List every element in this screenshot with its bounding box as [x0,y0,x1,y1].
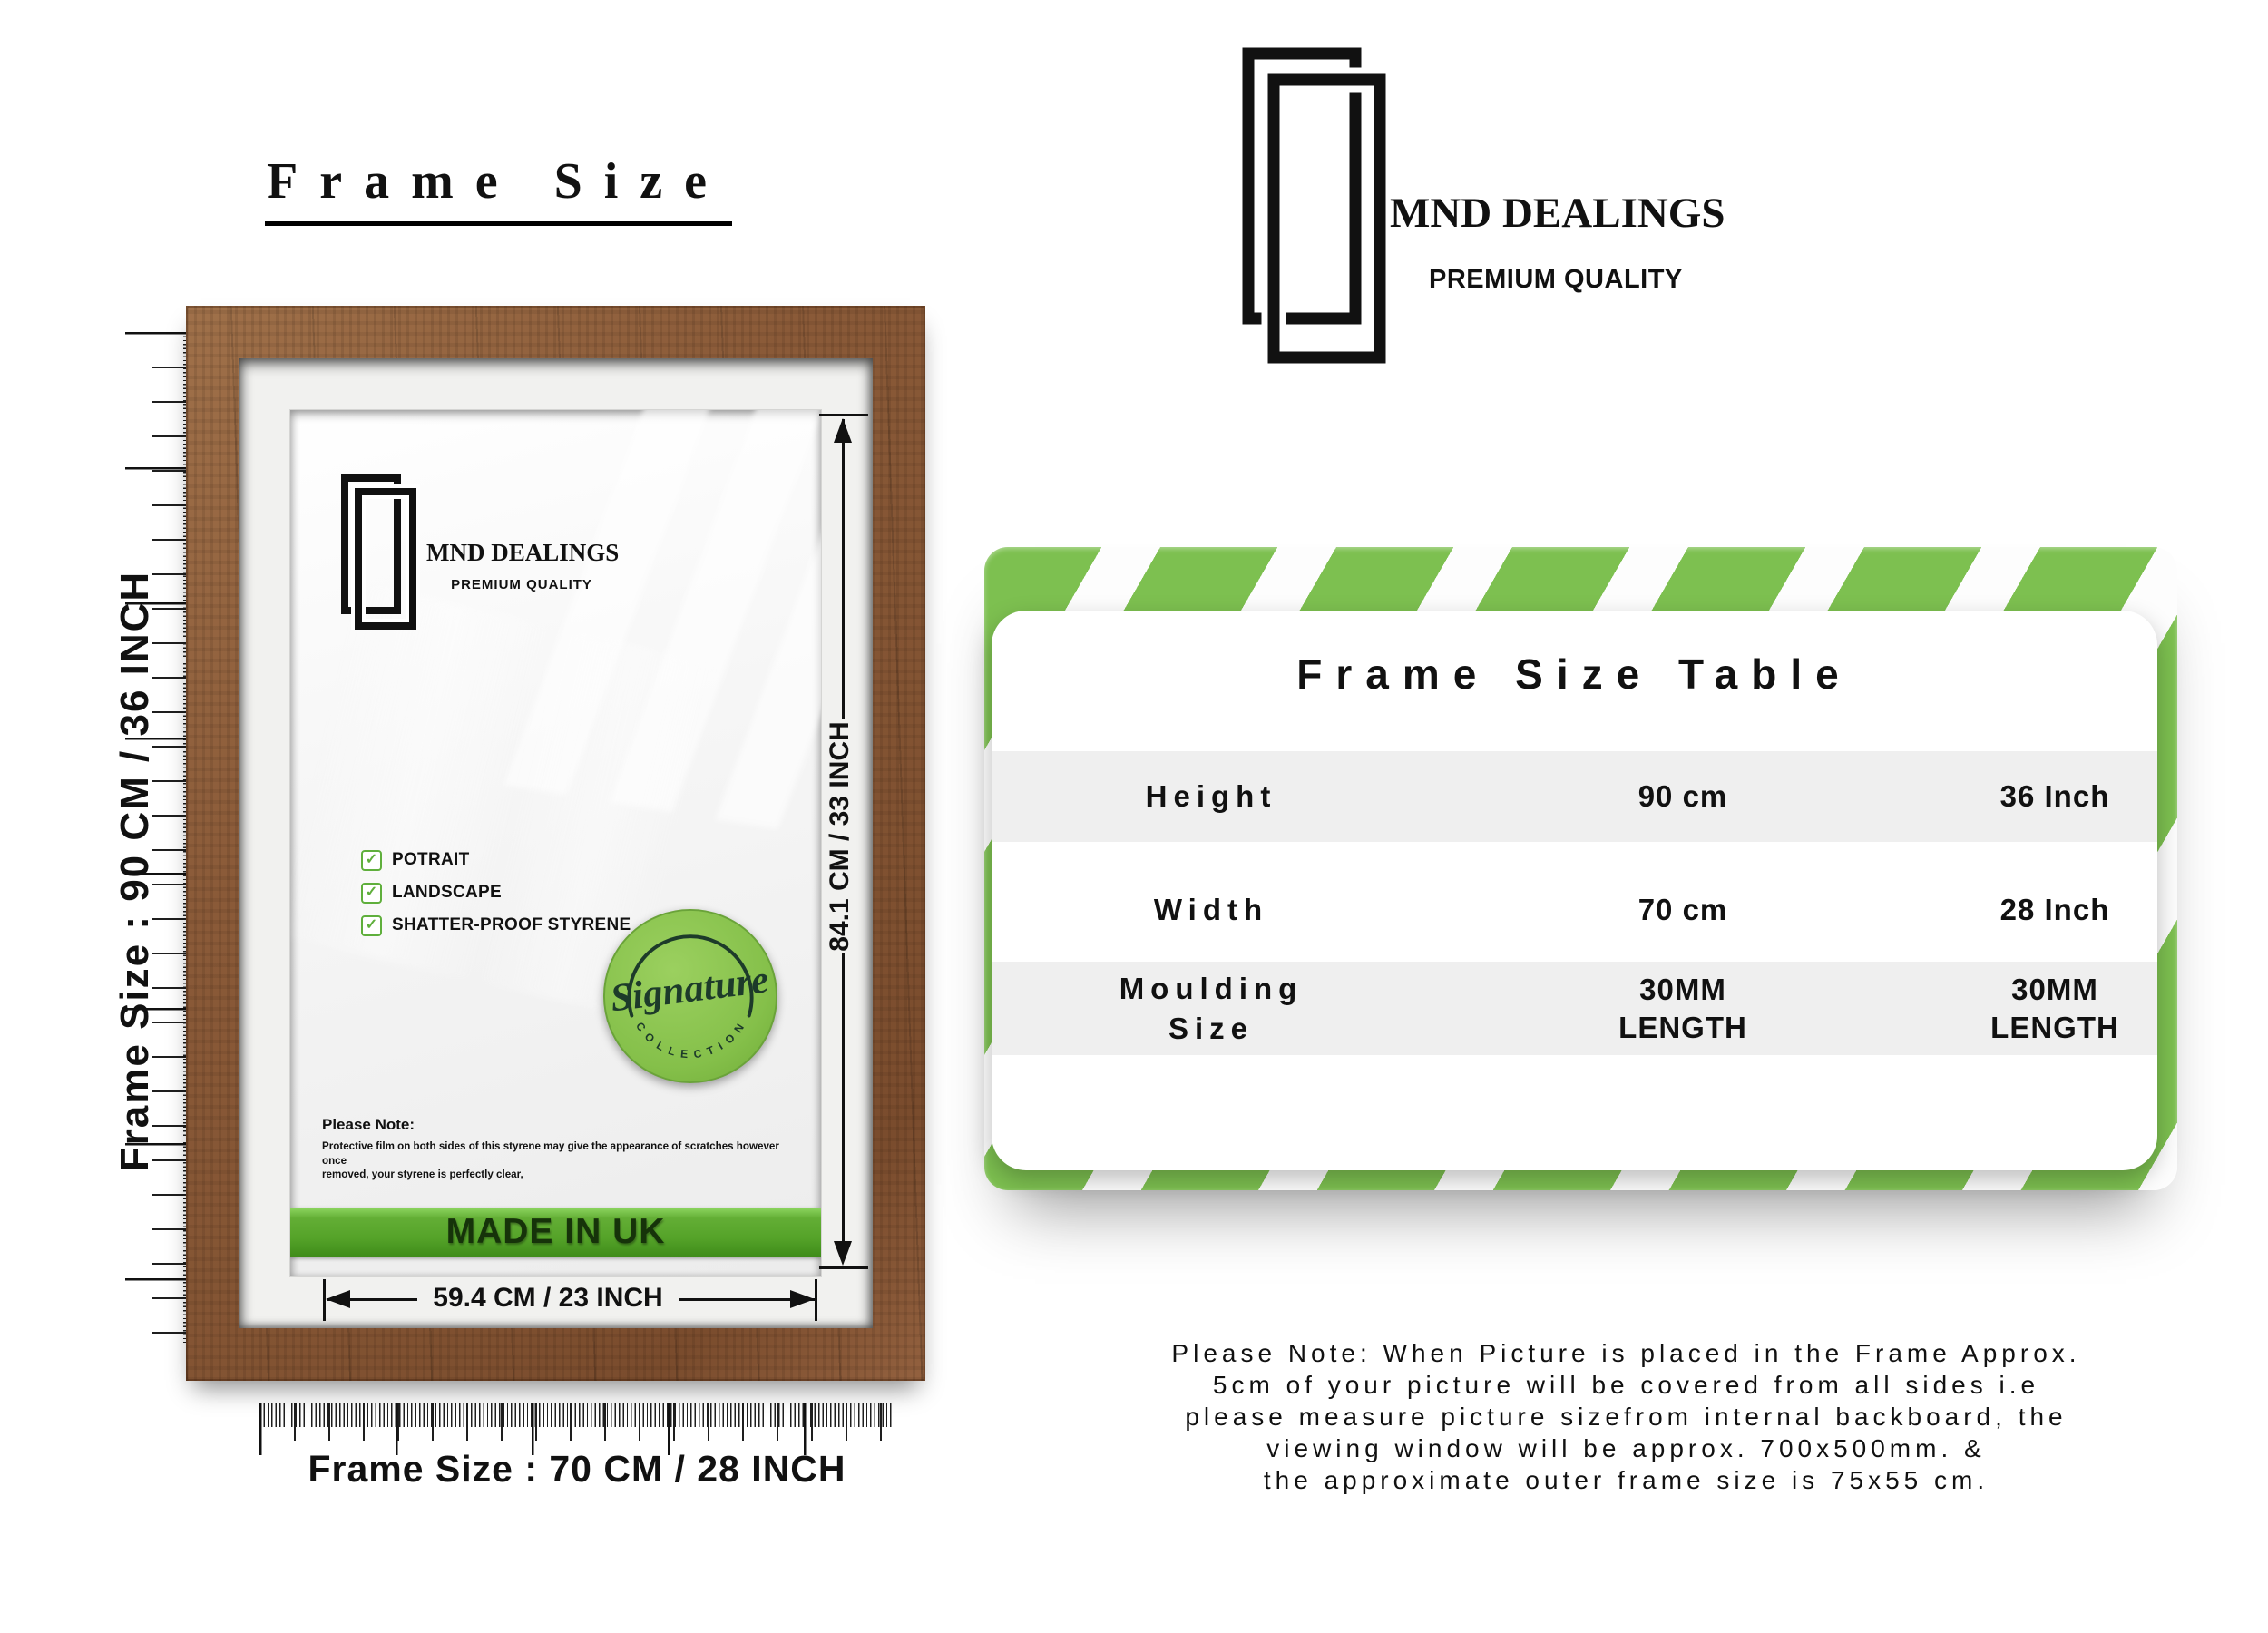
height-dimension-label: 84.1 CM / 33 INCH [825,691,861,982]
product-infographic: Frame Size Frame Size : 90 CM / 36 INCH … [0,0,2268,1633]
height-dimension-line [842,953,845,1261]
feature-label: SHATTER-PROOF STYRENE [392,915,631,935]
frame-width-label: Frame Size : 70 CM / 28 INCH [287,1448,867,1491]
arrow-up-icon [834,418,852,443]
arrow-left-icon [326,1290,350,1308]
table-cell-cm: 90 cm [1610,769,1755,824]
table-cell-inch: 28 Inch [1982,883,2127,937]
feature-checklist: ✓ POTRAIT ✓ LANDSCAPE ✓ SHATTER-PROOF ST… [361,844,631,942]
styrene-note: Please Note: Protective film on both sid… [322,1116,780,1182]
height-dimension-bottom-cap [819,1266,868,1269]
table-row-label: Width [1093,883,1329,937]
styrene-note-heading: Please Note: [322,1116,780,1134]
footer-note-line: the approximate outer frame size is 75x5… [1016,1464,2236,1496]
checkbox-checked-icon: ✓ [361,850,382,871]
feature-item: ✓ SHATTER-PROOF STYRENE [361,909,631,942]
made-in-uk-banner: MADE IN UK [290,1208,821,1257]
feature-label: LANDSCAPE [392,883,502,903]
footer-note: Please Note: When Picture is placed in t… [1016,1337,2236,1496]
width-dimension-right-cap [815,1279,817,1321]
frames-logo-icon [340,474,424,630]
frame-glass: MND DEALINGS PREMIUM QUALITY ✓ POTRAIT ✓… [290,410,821,1276]
checkbox-checked-icon: ✓ [361,883,382,904]
brand-tagline: PREMIUM QUALITY [426,577,617,592]
brand-wordmark: MND DEALINGS [1390,189,1698,238]
table-cell-cm: 30MM LENGTH [1610,973,1755,1045]
brand-tagline: PREMIUM QUALITY [1429,265,1647,295]
made-in-uk-text: MADE IN UK [446,1212,666,1252]
height-dimension-top-cap [819,414,868,416]
table-cell-inch: 30MM LENGTH [1982,973,2127,1045]
footer-note-line: please measure picture sizefrom internal… [1016,1401,2236,1433]
page-title: Frame Size [265,152,732,226]
checkbox-checked-icon: ✓ [361,915,382,936]
arrow-right-icon [790,1290,815,1308]
frame-height-label: Frame Size : 90 CM / 36 INCH [112,526,160,1216]
feature-item: ✓ POTRAIT [361,844,631,876]
footer-note-line: Please Note: When Picture is placed in t… [1016,1337,2236,1369]
styrene-note-line: removed, your styrene is perfectly clear… [322,1168,780,1182]
signature-collection-badge: Signature C O L L E C T I O N [601,907,779,1085]
feature-label: POTRAIT [392,850,470,870]
frames-logo-icon [1241,47,1386,367]
brand-wordmark: MND DEALINGS [426,539,617,567]
table-cell-cm: 70 cm [1610,883,1755,937]
footer-note-line: viewing window will be approx. 700x500mm… [1016,1433,2236,1464]
feature-item: ✓ LANDSCAPE [361,876,631,909]
table-row-label: Moulding Size [1093,973,1329,1045]
table-title: Frame Size Table [992,650,2157,699]
width-dimension-label: 59.4 CM / 23 INCH [403,1283,693,1314]
frame-mat: MND DEALINGS PREMIUM QUALITY ✓ POTRAIT ✓… [239,358,873,1328]
table-cell-inch: 36 Inch [1982,769,2127,824]
wooden-picture-frame: MND DEALINGS PREMIUM QUALITY ✓ POTRAIT ✓… [186,306,925,1381]
height-dimension-line [842,419,845,719]
table-row-label: Height [1093,769,1329,824]
arrow-down-icon [834,1241,852,1266]
styrene-note-line: Protective film on both sides of this st… [322,1139,780,1168]
footer-note-line: 5cm of your picture will be covered from… [1016,1369,2236,1401]
